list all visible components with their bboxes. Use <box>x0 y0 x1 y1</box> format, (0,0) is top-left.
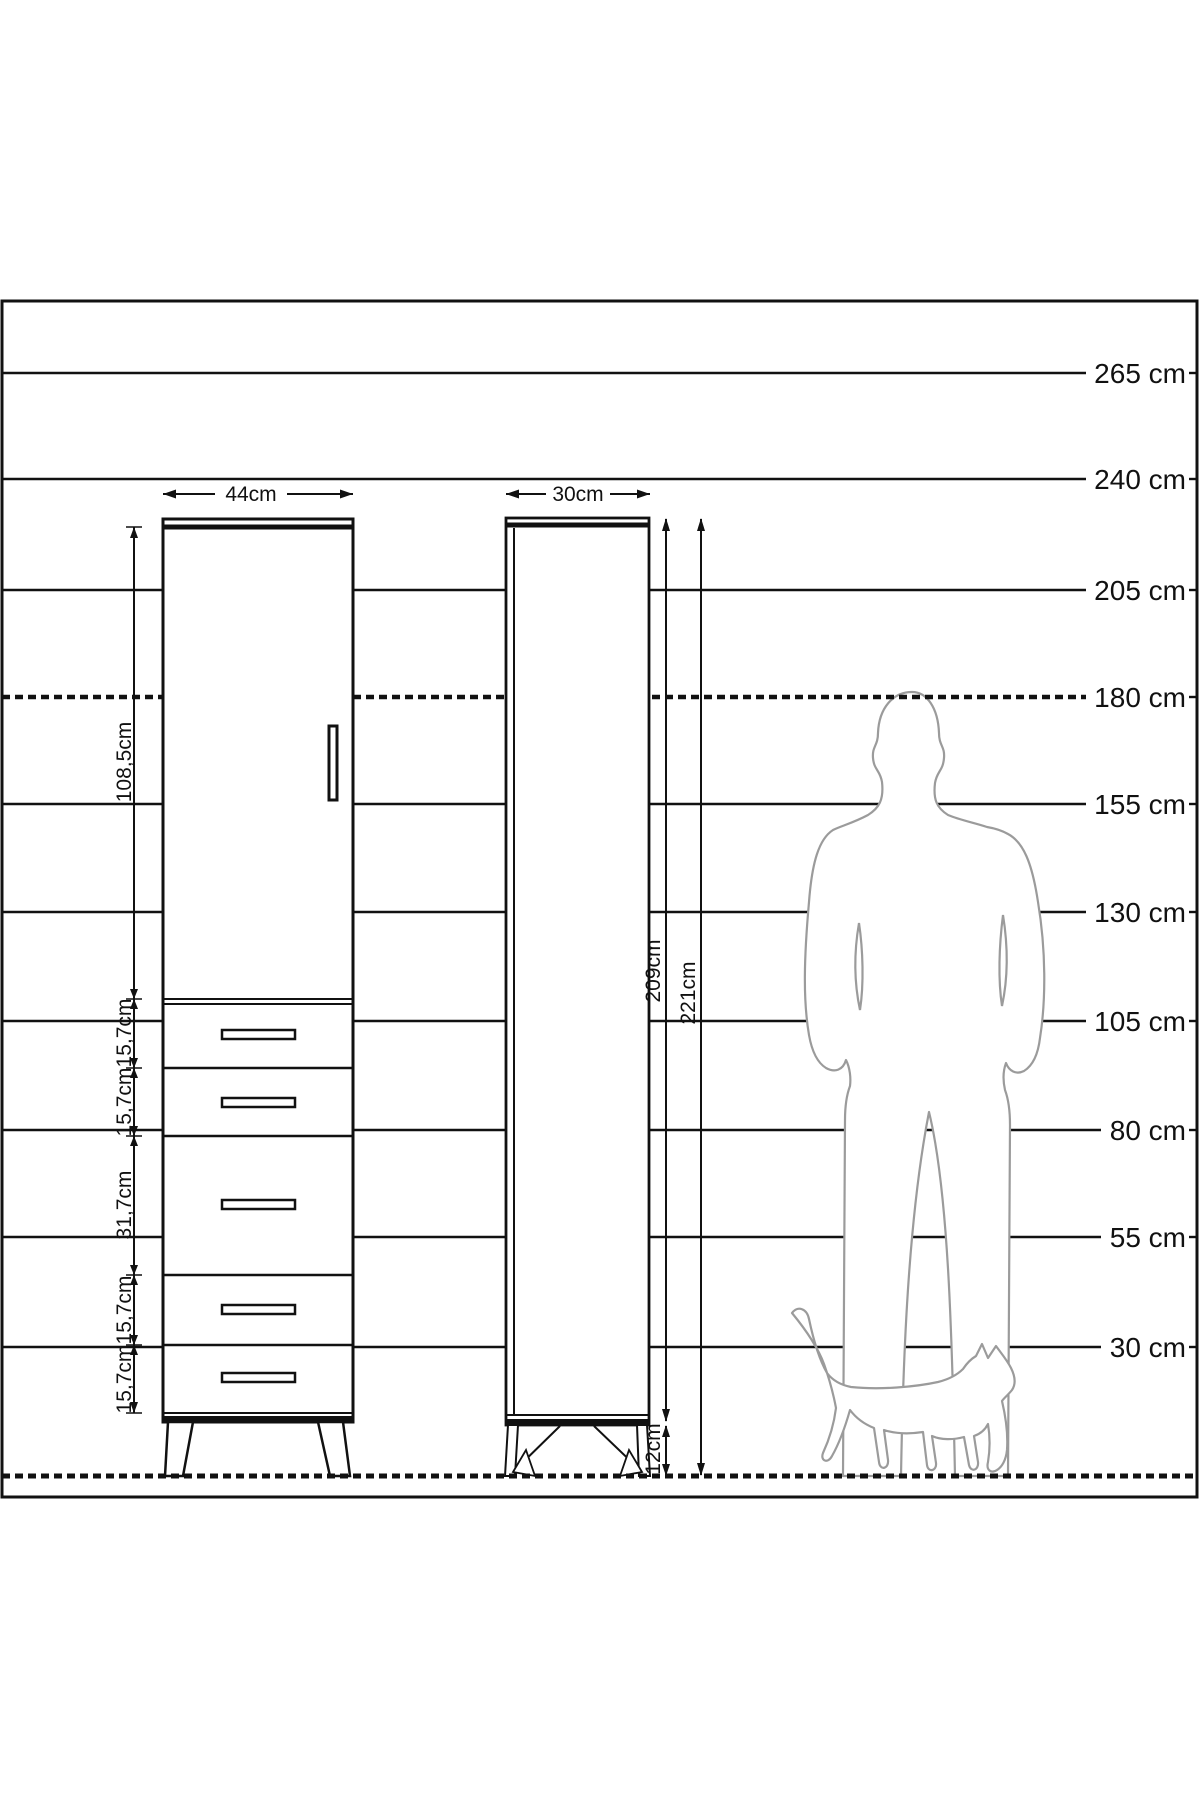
drawer-height-label-3: 31,7cm <box>113 1171 136 1240</box>
drawer-handle-3 <box>222 1200 295 1209</box>
carcass-height-label: 209cm <box>642 939 665 1002</box>
scale-label-205: 205 cm <box>1094 575 1186 606</box>
front-width-label: 44cm <box>225 483 276 506</box>
human-silhouette <box>805 692 1044 1476</box>
chain-arrow-up <box>130 1265 138 1275</box>
drawer-handle-5 <box>222 1373 295 1382</box>
drawer-height-label-1: 15,7cm <box>113 999 136 1068</box>
front-left-leg <box>165 1422 193 1476</box>
dim-30-arrow-left <box>506 490 519 499</box>
scale-label-240: 240 cm <box>1094 464 1186 495</box>
scale-label-155: 155 cm <box>1094 789 1186 820</box>
side-carcass <box>506 518 649 1425</box>
scale-label-55: 55 cm <box>1110 1222 1186 1253</box>
scale-label-180: 180 cm <box>1094 682 1186 713</box>
front-right-leg <box>318 1422 350 1476</box>
scale-label-265: 265 cm <box>1094 358 1186 389</box>
dim-209-arrow-top <box>662 518 670 531</box>
scale-label-130: 130 cm <box>1094 897 1186 928</box>
dim-44-arrow-left <box>163 490 176 499</box>
dim-44-arrow-right <box>340 490 353 499</box>
door-handle <box>329 726 337 800</box>
dim-30-arrow-right <box>637 490 650 499</box>
side-depth-label: 30cm <box>552 483 603 506</box>
drawer-handle-2 <box>222 1098 295 1107</box>
drawer-height-label-4: 15,7cm <box>113 1276 136 1345</box>
front-width-dimension: 44cm <box>163 483 353 506</box>
human-outline <box>805 692 1044 1476</box>
dim-221-arrow-top <box>697 518 705 531</box>
scale-label-80: 80 cm <box>1110 1115 1186 1146</box>
leg-height-label: 12cm <box>642 1423 665 1474</box>
drawer-handle-1 <box>222 1030 295 1039</box>
side-view-cabinet <box>505 518 650 1476</box>
scale-label-105: 105 cm <box>1094 1006 1186 1037</box>
side-depth-dimension: 30cm <box>506 483 650 506</box>
front-view-cabinet <box>163 519 353 1476</box>
drawer-height-label-2: 15,7cm <box>113 1068 136 1137</box>
chain-arrow-up <box>130 989 138 999</box>
scale-label-30: 30 cm <box>1110 1332 1186 1363</box>
chain-arrow-top <box>130 527 138 538</box>
drawer-handle-4 <box>222 1305 295 1314</box>
dimension-diagram: 265 cm 240 cm 205 cm 155 cm 130 cm 105 c… <box>0 0 1200 1800</box>
side-height-dimensions: 209cm 12cm 221cm <box>642 518 705 1476</box>
front-carcass <box>163 519 353 1422</box>
door-height-label: 108,5cm <box>113 722 136 803</box>
diagram-canvas: 265 cm 240 cm 205 cm 155 cm 130 cm 105 c… <box>0 0 1200 1800</box>
dim-209-arrow-bottom <box>662 1409 670 1422</box>
total-height-label: 221cm <box>677 961 700 1024</box>
front-chain-dimension: 108,5cm 15,7cm 15,7cm 31,7cm 15,7cm 15,7… <box>113 527 142 1413</box>
chain-arrow-down <box>130 1136 138 1146</box>
drawer-height-label-5: 15,7cm <box>113 1345 136 1414</box>
